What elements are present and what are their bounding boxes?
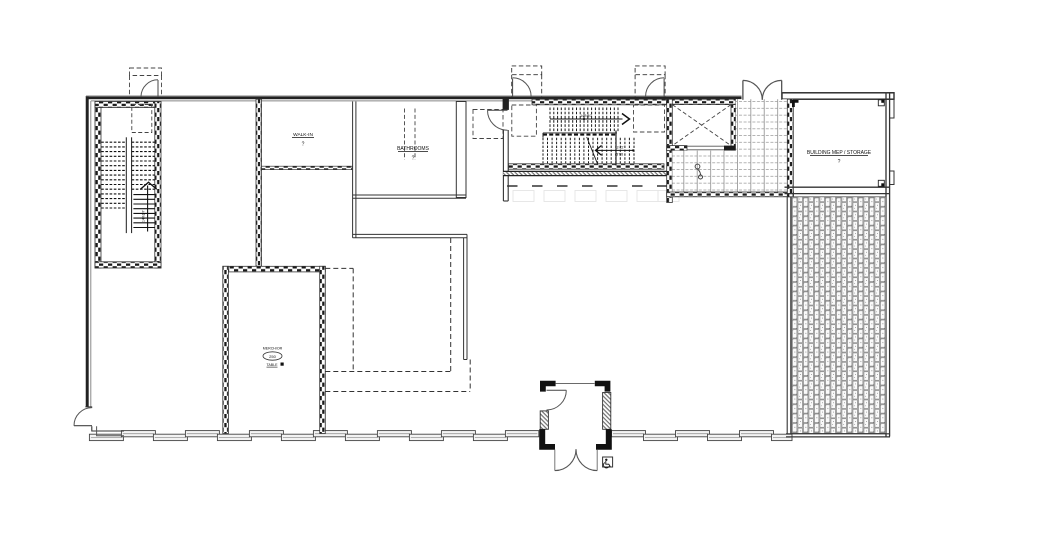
svg-text:250: 250: [269, 354, 276, 359]
svg-text:MERCH/OR: MERCH/OR: [263, 347, 283, 351]
svg-text:BUILDING MEP / STORAGE: BUILDING MEP / STORAGE: [807, 150, 872, 156]
svg-text:TABLE: TABLE: [266, 363, 278, 367]
svg-text:WALK-IN: WALK-IN: [293, 132, 313, 138]
svg-text:14R@7: 14R@7: [142, 210, 146, 222]
svg-text:?: ?: [412, 156, 415, 162]
svg-text:BATHROOMS: BATHROOMS: [397, 146, 430, 152]
svg-text:?: ?: [302, 142, 305, 148]
svg-text:2-22: 2-22: [617, 145, 624, 149]
svg-text:?: ?: [838, 159, 841, 165]
svg-text:@7/8: @7/8: [615, 153, 623, 157]
svg-text:14R@7: 14R@7: [580, 114, 592, 118]
